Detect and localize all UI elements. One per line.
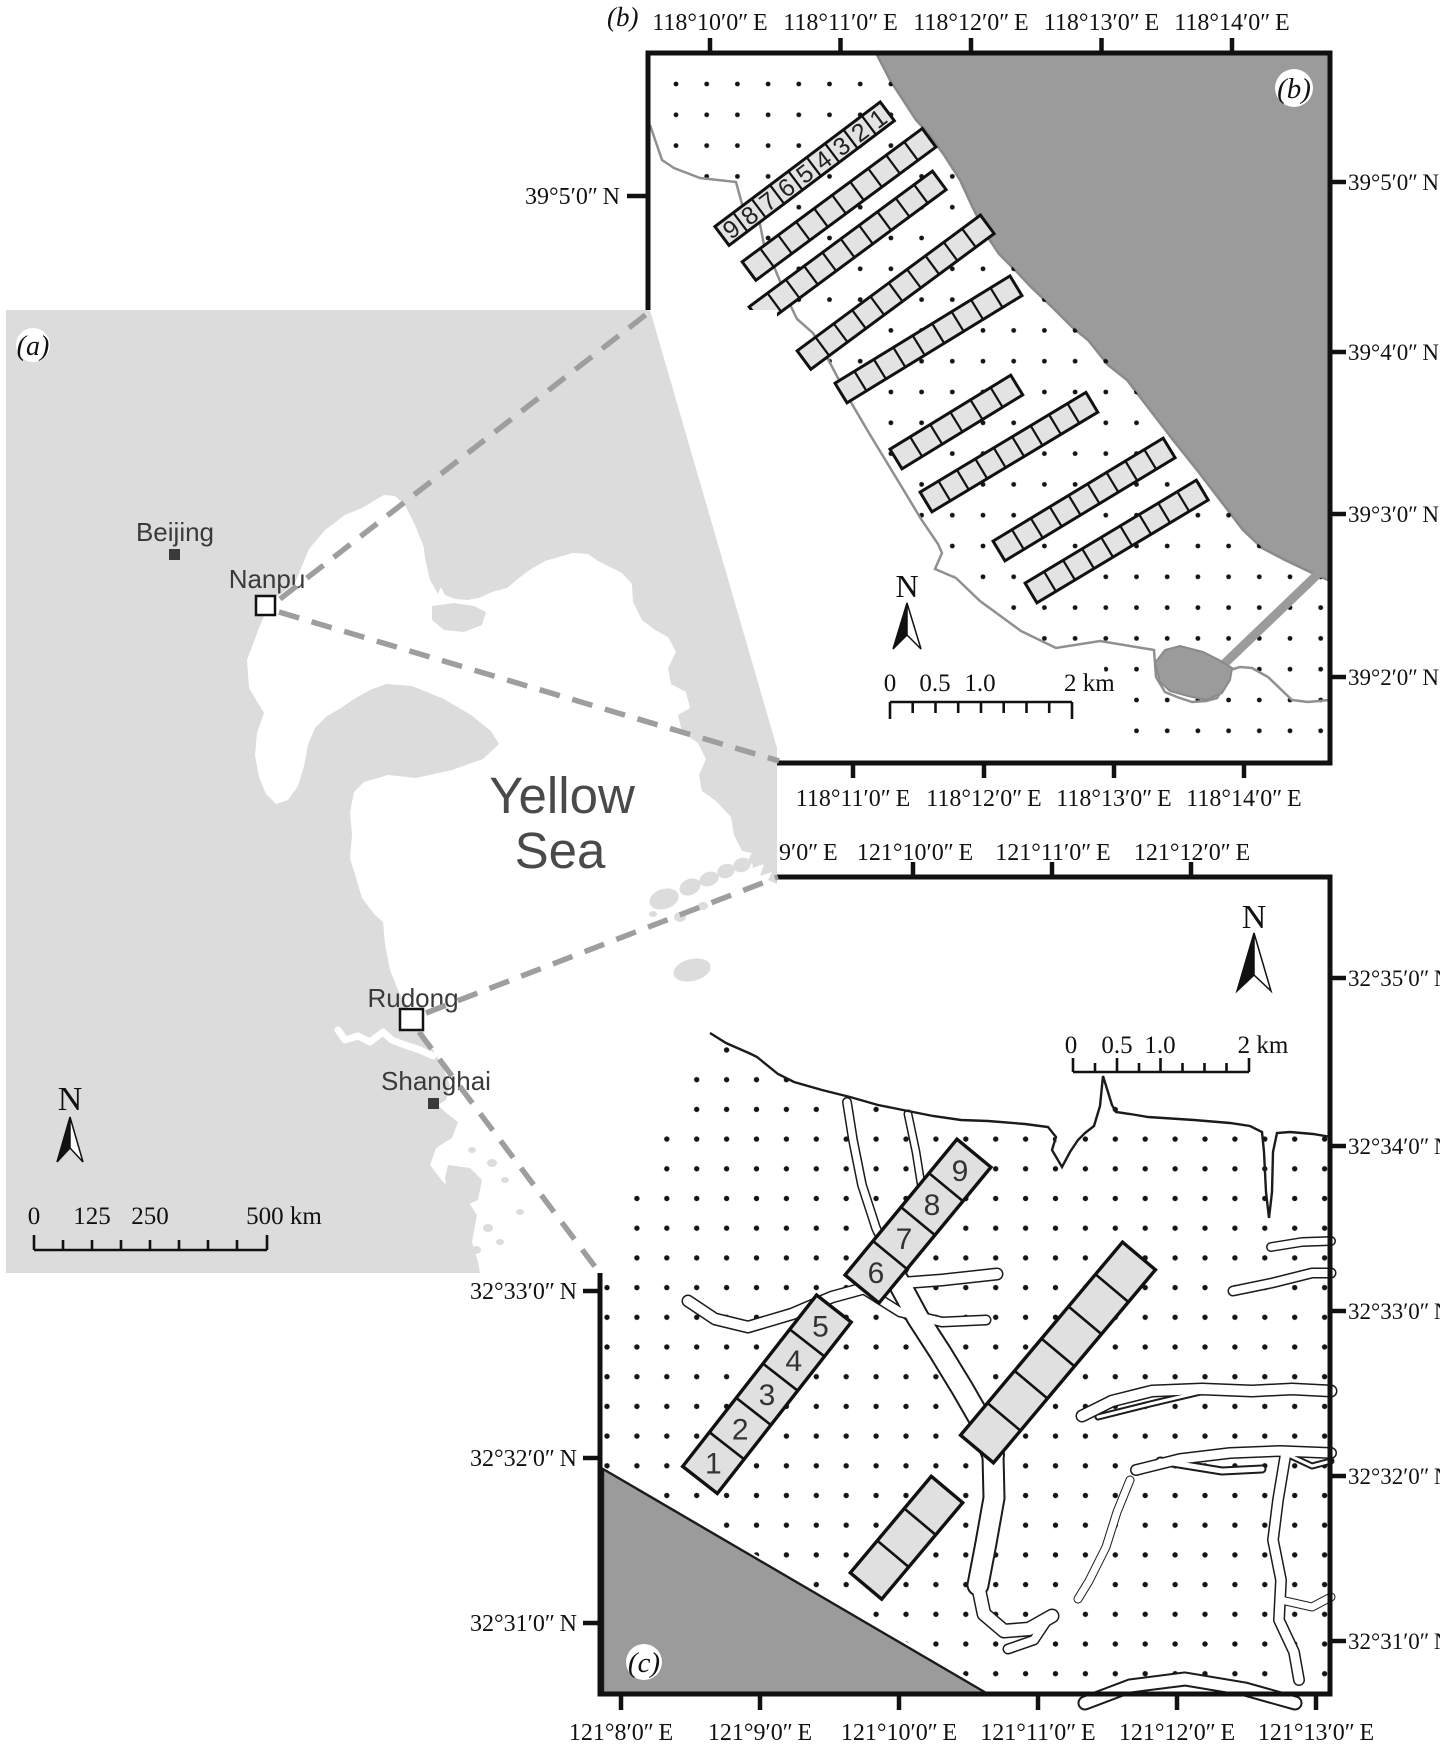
svg-text:39°5′0″ N: 39°5′0″ N xyxy=(525,184,620,210)
svg-text:0.5: 0.5 xyxy=(1101,1032,1132,1059)
svg-text:N: N xyxy=(58,1081,83,1118)
svg-text:Beijing: Beijing xyxy=(136,517,214,547)
svg-text:2 km: 2 km xyxy=(1238,1032,1289,1059)
svg-text:121°10′0″ E: 121°10′0″ E xyxy=(841,1720,957,1745)
svg-text:9: 9 xyxy=(952,1155,969,1188)
svg-text:121°12′0″ E: 121°12′0″ E xyxy=(1119,1720,1235,1745)
svg-text:Shanghai: Shanghai xyxy=(381,1066,491,1096)
svg-text:32°34′0″ N: 32°34′0″ N xyxy=(1348,1134,1440,1159)
svg-text:4: 4 xyxy=(785,1345,802,1378)
svg-text:(b): (b) xyxy=(607,2,638,32)
svg-text:32°33′0″ N: 32°33′0″ N xyxy=(470,1279,577,1305)
svg-text:Sea: Sea xyxy=(515,822,606,879)
svg-text:7: 7 xyxy=(896,1223,913,1256)
svg-text:32°33′0″ N: 32°33′0″ N xyxy=(1348,1299,1440,1324)
svg-text:118°13′0″ E: 118°13′0″ E xyxy=(1056,786,1171,812)
svg-text:2: 2 xyxy=(732,1413,749,1446)
svg-text:121°12′0″ E: 121°12′0″ E xyxy=(1134,840,1250,866)
svg-text:(c): (c) xyxy=(628,1647,660,1679)
svg-text:500 km: 500 km xyxy=(246,1203,322,1230)
svg-text:1.0: 1.0 xyxy=(964,670,995,697)
svg-text:3: 3 xyxy=(759,1379,776,1412)
svg-text:250: 250 xyxy=(131,1203,169,1230)
svg-text:0: 0 xyxy=(28,1203,41,1230)
svg-text:121°10′0″ E: 121°10′0″ E xyxy=(857,840,973,866)
svg-text:0.5: 0.5 xyxy=(919,670,950,697)
svg-text:121°13′0″ E: 121°13′0″ E xyxy=(1258,1720,1374,1745)
svg-text:32°32′0″ N: 32°32′0″ N xyxy=(1348,1464,1440,1489)
svg-text:1.0: 1.0 xyxy=(1144,1032,1175,1059)
svg-text:N: N xyxy=(1242,899,1267,936)
svg-text:118°14′0″ E: 118°14′0″ E xyxy=(1174,10,1289,36)
svg-text:N: N xyxy=(895,568,918,604)
svg-text:1: 1 xyxy=(705,1448,722,1481)
svg-text:32°32′0″ N: 32°32′0″ N xyxy=(470,1446,577,1472)
svg-text:121°11′0″ E: 121°11′0″ E xyxy=(995,840,1110,866)
svg-text:32°31′0″ N: 32°31′0″ N xyxy=(1348,1629,1440,1654)
svg-text:(b): (b) xyxy=(1277,73,1311,105)
svg-text:6: 6 xyxy=(868,1257,885,1290)
svg-text:39°4′0″ N: 39°4′0″ N xyxy=(1348,340,1439,365)
svg-text:(a): (a) xyxy=(17,331,50,362)
svg-text:125: 125 xyxy=(73,1203,111,1230)
svg-text:121°8′0″ E: 121°8′0″ E xyxy=(569,1720,673,1745)
svg-text:121°11′0″ E: 121°11′0″ E xyxy=(980,1720,1095,1745)
svg-text:39°2′0″ N: 39°2′0″ N xyxy=(1348,665,1439,690)
svg-text:2 km: 2 km xyxy=(1064,670,1115,697)
svg-text:118°12′0″ E: 118°12′0″ E xyxy=(913,10,1028,36)
svg-text:32°31′0″ N: 32°31′0″ N xyxy=(470,1611,577,1637)
svg-text:0: 0 xyxy=(884,670,897,697)
svg-text:118°13′0″ E: 118°13′0″ E xyxy=(1044,10,1159,36)
svg-text:5: 5 xyxy=(812,1311,829,1344)
svg-text:0: 0 xyxy=(1065,1032,1078,1059)
svg-text:39°3′0″ N: 39°3′0″ N xyxy=(1348,502,1439,527)
svg-text:9′0″ E: 9′0″ E xyxy=(779,840,838,866)
svg-text:121°9′0″ E: 121°9′0″ E xyxy=(708,1720,812,1745)
svg-text:39°5′0″ N: 39°5′0″ N xyxy=(1348,170,1439,195)
svg-text:32°35′0″ N: 32°35′0″ N xyxy=(1348,966,1440,991)
svg-text:118°14′0″ E: 118°14′0″ E xyxy=(1186,786,1301,812)
svg-text:118°11′0″ E: 118°11′0″ E xyxy=(796,786,911,812)
svg-text:118°12′0″ E: 118°12′0″ E xyxy=(926,786,1041,812)
svg-text:118°10′0″ E: 118°10′0″ E xyxy=(652,10,767,36)
svg-text:8: 8 xyxy=(924,1189,941,1222)
svg-text:118°11′0″ E: 118°11′0″ E xyxy=(783,10,898,36)
svg-text:Yellow: Yellow xyxy=(489,767,635,824)
